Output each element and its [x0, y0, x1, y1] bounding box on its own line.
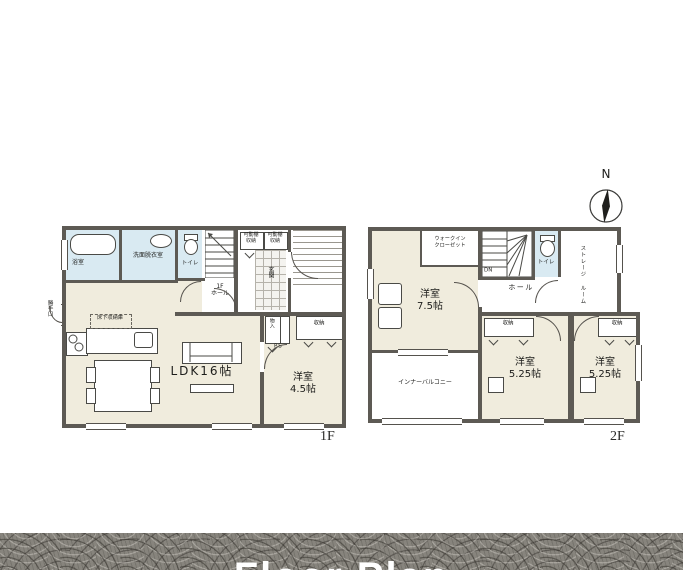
- wall: [558, 231, 561, 277]
- wic-line2: クローゼット: [432, 242, 468, 248]
- wall: [482, 277, 535, 280]
- storage-room-line2: ルーム: [579, 285, 585, 305]
- window: [61, 240, 68, 270]
- wall: [478, 227, 482, 280]
- compass-icon: [586, 181, 626, 227]
- kitchen-sink-icon: [134, 332, 153, 348]
- pipe-space-box: [280, 316, 290, 344]
- ldk-label: LDK16帖: [157, 364, 247, 378]
- movable-shelf-right-label: 可動棚 収納: [268, 232, 283, 244]
- movable-shelf-left-line2: 収納: [244, 238, 259, 244]
- wall: [234, 230, 238, 312]
- window: [616, 245, 623, 273]
- washroom-label: 洗面脱衣室: [128, 252, 168, 259]
- storage-room-line1: ストレージ: [579, 245, 585, 278]
- window: [382, 418, 462, 425]
- wall: [568, 316, 574, 419]
- bedroom-center-name: 洋室: [495, 357, 555, 369]
- toilet-1f-label: トイレ: [179, 260, 201, 267]
- stove-burners-icon: [66, 332, 86, 354]
- window: [86, 423, 126, 430]
- wall: [260, 372, 264, 424]
- window: [212, 423, 252, 430]
- bedroom-right-name: 洋室: [575, 357, 635, 369]
- walk-in-closet-label: ウォークイン クローゼット: [432, 236, 468, 248]
- outer-wall-left: [368, 227, 372, 423]
- bedroom-4_5-name: 洋室: [273, 372, 333, 384]
- window: [500, 418, 544, 425]
- window: [635, 345, 642, 381]
- outer-wall-right: [342, 226, 346, 428]
- wall: [175, 230, 178, 278]
- wall: [532, 231, 535, 277]
- wall: [478, 307, 482, 419]
- movable-shelf-left-label: 可動棚 収納: [244, 232, 259, 244]
- desk-icon: [580, 377, 596, 393]
- bedroom-7_5-label: 洋室 7.5帖: [400, 289, 460, 313]
- back-door-arc: [49, 306, 62, 323]
- balcony-label: インナーバルコニー: [392, 379, 458, 386]
- wall: [288, 230, 291, 252]
- tv-board-icon: [190, 384, 234, 393]
- footer-banner: Floor Plan: [0, 533, 683, 570]
- chair: [86, 388, 96, 404]
- storage-room-label: ストレージ ルーム: [579, 245, 586, 278]
- closet-1f-label: 収納: [306, 320, 331, 327]
- bed-icon-bottom: [378, 307, 402, 329]
- bedroom-7_5-size: 7.5帖: [400, 301, 460, 313]
- wall: [119, 230, 122, 280]
- wall: [260, 316, 264, 342]
- bedroom-4_5-label: 洋室 4.5帖: [273, 372, 333, 396]
- hall-2f-label: ホール: [501, 284, 540, 292]
- footer-title: Floor Plan: [0, 555, 683, 570]
- bedroom-4_5-size: 4.5帖: [273, 384, 333, 396]
- floor2-tag: 2F: [610, 429, 625, 445]
- compass-north-label: N: [586, 167, 626, 181]
- bath-label: 浴室: [72, 259, 84, 266]
- washbasin-icon: [150, 234, 172, 248]
- outer-wall-top: [368, 227, 621, 231]
- wall: [288, 278, 291, 312]
- window: [584, 418, 624, 425]
- entrance-tile-floor: [255, 250, 286, 310]
- toilet-bowl-icon-1f: [184, 239, 198, 255]
- entrance-label: 玄関: [266, 266, 273, 278]
- closet-right-label: 収納: [607, 320, 628, 327]
- desk-icon: [488, 377, 504, 393]
- storage-small-label: 物入: [268, 318, 274, 328]
- floorplan-page: N: [0, 0, 683, 570]
- dining-table: [94, 360, 152, 412]
- outer-wall-top: [62, 226, 346, 230]
- toilet-2f-label: トイレ: [535, 259, 557, 266]
- bedroom-7_5-name: 洋室: [400, 289, 460, 301]
- closet-center-label: 収納: [495, 320, 521, 327]
- movable-shelf-right-line2: 収納: [268, 238, 283, 244]
- chair: [150, 388, 160, 404]
- stairs-1f: [205, 230, 234, 278]
- floor-storage-label: 床下収納庫: [94, 315, 125, 321]
- floor1-plan: 可動棚 収納 可動棚 収納 浴室 洗面脱衣室 トイレ 1F ホール 玄関 勝手口: [62, 226, 346, 428]
- wall: [420, 231, 422, 267]
- wall: [66, 280, 178, 283]
- sofa-lines-icon: [182, 342, 240, 362]
- window: [398, 349, 448, 356]
- bedroom-center-size: 5.25帖: [495, 369, 555, 381]
- bathtub-icon: [70, 234, 116, 255]
- bedroom-center-label: 洋室 5.25帖: [495, 357, 555, 381]
- wall: [478, 312, 561, 316]
- room-storage-room: [561, 231, 617, 312]
- bed-icon-top: [378, 283, 402, 305]
- stairs-down-label: DN: [484, 267, 492, 274]
- compass: N: [586, 167, 626, 227]
- floor2-plan: ウォークイン クローゼット DN トイレ ストレージ ルーム: [368, 227, 640, 423]
- window: [367, 269, 374, 299]
- toilet-bowl-icon-2f: [540, 240, 555, 257]
- floor1-tag: 1F: [320, 429, 335, 445]
- wall: [420, 265, 478, 267]
- chair: [86, 367, 96, 383]
- window: [284, 423, 324, 430]
